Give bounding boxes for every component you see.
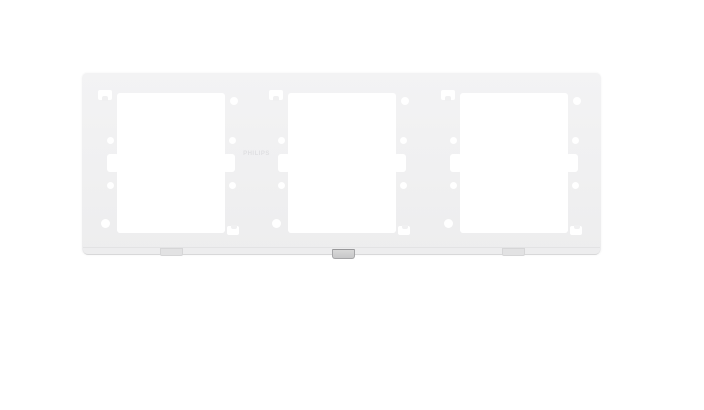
side-cutout-right (394, 154, 406, 172)
gang-window (117, 93, 225, 233)
gang-window (288, 93, 396, 233)
brand-embossed-text: PHILIPS (225, 151, 288, 157)
side-cutout-right (566, 154, 578, 172)
screw-hole-left-upper (278, 137, 285, 144)
screw-hole-top-right (573, 97, 581, 105)
mounting-notch-bottom-right (398, 226, 410, 235)
clip-tab-center (332, 249, 355, 259)
screw-hole-left-lower (450, 182, 457, 189)
notch-tab (273, 96, 279, 101)
screw-hole-bottom-left (444, 219, 453, 228)
screw-hole-top-right (230, 97, 238, 105)
notch-tab (445, 96, 451, 101)
screw-hole-right-upper (229, 137, 236, 144)
screw-hole-right-lower (229, 182, 236, 189)
gang-opening-3 (460, 93, 568, 233)
screw-hole-right-upper (400, 137, 407, 144)
gang-opening-1 (117, 93, 225, 233)
screw-hole-left-upper (107, 137, 114, 144)
mounting-notch-top-left (98, 90, 112, 100)
screw-hole-right-lower (572, 182, 579, 189)
gang-opening-2 (288, 93, 396, 233)
mounting-notch-bottom-right (227, 226, 239, 235)
screw-hole-left-lower (278, 182, 285, 189)
product-photo: PHILIPS (0, 0, 704, 410)
mounting-notch-top-left (441, 90, 455, 100)
notch-tab (402, 225, 408, 229)
screw-hole-bottom-left (272, 219, 281, 228)
screw-hole-left-upper (450, 137, 457, 144)
notch-tab (102, 96, 108, 101)
clip-tab-right (502, 248, 525, 256)
screw-hole-right-lower (400, 182, 407, 189)
side-cutout-left (450, 154, 462, 172)
screw-hole-bottom-left (101, 219, 110, 228)
gang-window (460, 93, 568, 233)
notch-tab (231, 225, 237, 229)
screw-hole-right-upper (572, 137, 579, 144)
mounting-notch-top-left (269, 90, 283, 100)
screw-hole-left-lower (107, 182, 114, 189)
clip-tab-left (160, 248, 183, 256)
screw-hole-top-right (401, 97, 409, 105)
side-cutout-left (107, 154, 119, 172)
mounting-notch-bottom-right (570, 226, 582, 235)
notch-tab (574, 225, 580, 229)
faceplate: PHILIPS (82, 72, 601, 254)
